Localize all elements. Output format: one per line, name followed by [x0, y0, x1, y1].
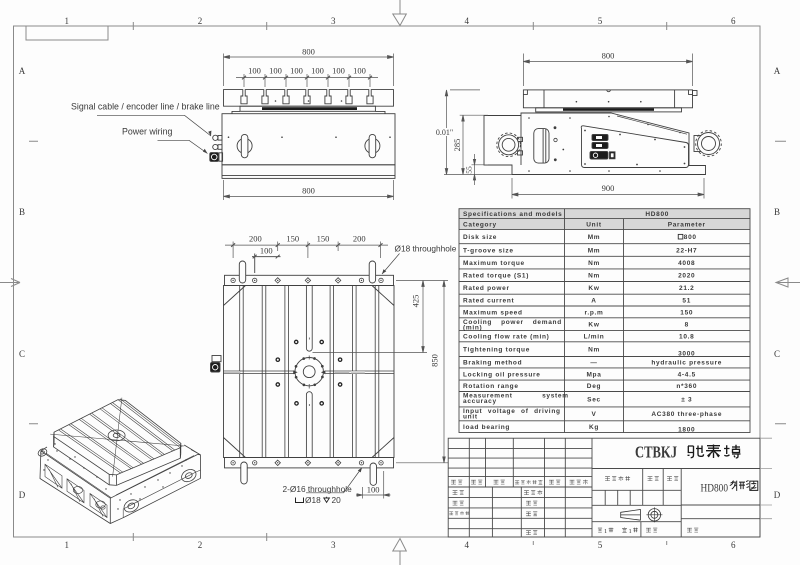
- svg-text:100: 100: [260, 246, 273, 256]
- svg-text:(min): (min): [463, 324, 482, 331]
- svg-text:Kg: Kg: [589, 424, 599, 431]
- svg-text:5: 5: [598, 16, 603, 26]
- svg-text:1: 1: [629, 528, 632, 535]
- svg-text:Rated torque (S1): Rated torque (S1): [463, 273, 529, 280]
- svg-text:285: 285: [452, 139, 462, 152]
- svg-text:—: —: [590, 360, 597, 367]
- svg-text:100: 100: [353, 66, 366, 76]
- svg-text:Unit: Unit: [586, 222, 602, 229]
- svg-text:CTBKJ: CTBKJ: [635, 443, 677, 462]
- svg-text:1800: 1800: [678, 426, 695, 433]
- svg-text:A: A: [591, 298, 596, 305]
- svg-text:Kw: Kw: [588, 285, 599, 292]
- svg-text:Ø18: Ø18: [305, 495, 321, 505]
- svg-text:1: 1: [64, 540, 69, 550]
- svg-text:150: 150: [680, 309, 693, 316]
- svg-text:Signal cable / encoder line /: Signal cable / encoder line / brake line: [71, 102, 220, 112]
- svg-text:Braking method: Braking method: [463, 360, 522, 367]
- svg-text:Nm: Nm: [588, 273, 600, 280]
- svg-text:Deg: Deg: [587, 383, 601, 390]
- svg-text:Mpa: Mpa: [586, 371, 601, 378]
- svg-text:n*360: n*360: [676, 383, 697, 390]
- svg-text:1: 1: [64, 16, 69, 26]
- svg-text:3000: 3000: [678, 350, 695, 357]
- svg-text:V: V: [591, 411, 596, 418]
- svg-text:3: 3: [331, 540, 336, 550]
- svg-text:800: 800: [602, 51, 615, 61]
- svg-text:Category: Category: [463, 222, 497, 229]
- svg-text:4008: 4008: [678, 260, 695, 267]
- svg-text:425: 425: [411, 295, 421, 308]
- svg-text:2: 2: [198, 540, 203, 550]
- svg-text:4: 4: [464, 16, 469, 26]
- svg-text:A: A: [19, 66, 26, 76]
- svg-text:Tightening torque: Tightening torque: [463, 347, 530, 354]
- svg-text:850: 850: [430, 354, 440, 367]
- svg-text:10.8: 10.8: [679, 334, 694, 341]
- svg-text:6: 6: [731, 16, 736, 26]
- svg-text:Kw: Kw: [588, 322, 599, 329]
- svg-text:L/min: L/min: [584, 334, 605, 341]
- svg-text:22-H7: 22-H7: [676, 247, 697, 254]
- svg-text:Specifications and models: Specifications and models: [463, 211, 563, 218]
- svg-text:load bearing: load bearing: [463, 424, 510, 431]
- svg-text:Nm: Nm: [588, 347, 600, 354]
- svg-text:Rated current: Rated current: [463, 298, 514, 305]
- svg-text:± 3: ± 3: [681, 397, 692, 404]
- svg-text:900: 900: [602, 183, 615, 193]
- svg-text:accuracy: accuracy: [463, 398, 497, 405]
- svg-text:0.01": 0.01": [436, 128, 453, 137]
- svg-text:2-Ø16 throughhole: 2-Ø16 throughhole: [283, 484, 353, 494]
- svg-text:AC380 three-phase: AC380 three-phase: [651, 411, 722, 418]
- svg-text:200: 200: [353, 234, 366, 244]
- svg-text:T-groove size: T-groove size: [463, 247, 514, 254]
- svg-text:Mm: Mm: [588, 247, 601, 254]
- svg-text:20: 20: [332, 495, 342, 505]
- svg-text:Disk size: Disk size: [463, 234, 497, 241]
- svg-text:150: 150: [317, 234, 330, 244]
- svg-text:HD800: HD800: [645, 211, 669, 218]
- svg-text:B: B: [19, 207, 25, 217]
- svg-text:3: 3: [331, 16, 336, 26]
- svg-text:hydraulic pressure: hydraulic pressure: [651, 360, 722, 367]
- svg-text:51: 51: [682, 298, 691, 305]
- svg-text:D: D: [19, 490, 26, 500]
- svg-text:100: 100: [248, 66, 261, 76]
- svg-text:B: B: [774, 207, 780, 217]
- svg-text:6: 6: [731, 540, 736, 550]
- svg-text:100: 100: [311, 66, 324, 76]
- svg-text:C: C: [774, 349, 780, 359]
- svg-text:C: C: [19, 349, 25, 359]
- svg-text:Ø18 throughhole: Ø18 throughhole: [395, 244, 457, 254]
- svg-text:100: 100: [332, 66, 345, 76]
- svg-text:r.p.m: r.p.m: [584, 309, 603, 316]
- svg-text:A: A: [774, 66, 781, 76]
- svg-text:unit: unit: [463, 414, 478, 421]
- svg-text:Power wiring: Power wiring: [122, 127, 172, 137]
- svg-text:21.2: 21.2: [679, 285, 694, 292]
- svg-text:200: 200: [249, 234, 262, 244]
- svg-text:100: 100: [290, 66, 303, 76]
- svg-text:Parameter: Parameter: [668, 222, 706, 229]
- svg-text:4: 4: [464, 540, 469, 550]
- svg-text:8: 8: [685, 322, 689, 329]
- svg-text:Cooling flow rate (min): Cooling flow rate (min): [463, 334, 550, 341]
- svg-text:1: 1: [604, 528, 607, 535]
- svg-text:Rated power: Rated power: [463, 285, 510, 292]
- svg-text:2: 2: [198, 16, 203, 26]
- svg-text:4-4.5: 4-4.5: [678, 371, 696, 378]
- svg-text:5: 5: [598, 540, 603, 550]
- svg-text:Maximum speed: Maximum speed: [463, 309, 523, 316]
- svg-text:150: 150: [286, 234, 299, 244]
- svg-text:800: 800: [684, 234, 697, 241]
- svg-text:800: 800: [302, 186, 315, 196]
- svg-text:800: 800: [302, 47, 315, 57]
- svg-text:HD800: HD800: [701, 483, 729, 495]
- svg-text:Sec: Sec: [587, 397, 601, 404]
- svg-text:Rotation range: Rotation range: [463, 383, 519, 390]
- svg-text:Nm: Nm: [588, 260, 600, 267]
- svg-text:100: 100: [367, 484, 380, 494]
- svg-text:100: 100: [269, 66, 282, 76]
- svg-text:D: D: [774, 490, 781, 500]
- svg-text:Maximum torque: Maximum torque: [463, 260, 525, 267]
- svg-text:Locking oil pressure: Locking oil pressure: [463, 371, 541, 378]
- svg-text:Mm: Mm: [588, 234, 601, 241]
- svg-text:2020: 2020: [678, 273, 695, 280]
- svg-text:55: 55: [465, 166, 474, 174]
